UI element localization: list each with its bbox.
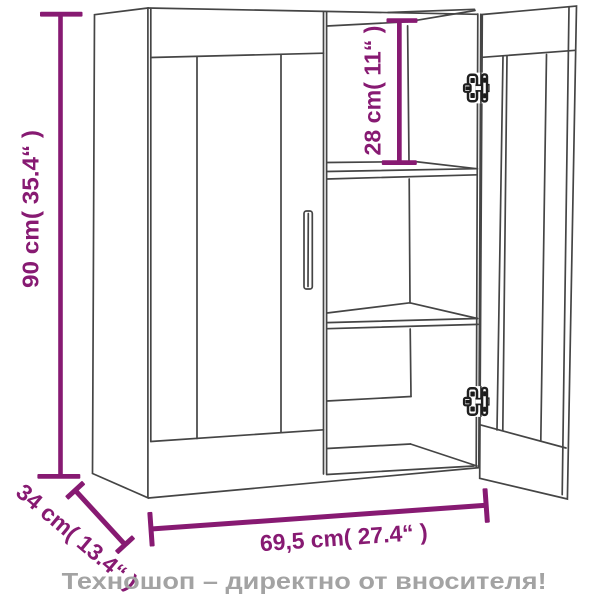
svg-text:28 cm( 11“ ): 28 cm( 11“ )	[360, 26, 386, 156]
svg-text:Техношоп – директно от вносите: Техношоп – директно от вносителя!	[62, 568, 547, 594]
svg-text:90 cm( 35.4“ ): 90 cm( 35.4“ )	[18, 130, 44, 288]
